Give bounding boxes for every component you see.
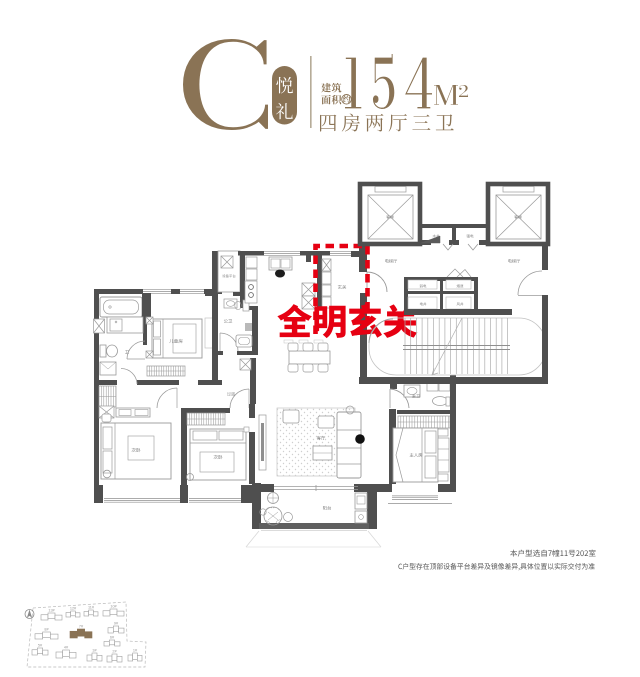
svg-text:8#: 8# [44, 628, 49, 632]
svg-text:9#: 9# [114, 622, 119, 626]
svg-text:4#: 4# [64, 646, 69, 650]
svg-text:11#: 11# [88, 606, 95, 610]
svg-text:7#: 7# [79, 625, 84, 629]
svg-text:12#: 12# [70, 607, 77, 611]
svg-text:10#: 10# [110, 605, 117, 609]
svg-text:5#: 5# [38, 644, 43, 648]
svg-text:13#: 13# [48, 609, 55, 613]
svg-text:2#: 2# [112, 650, 117, 654]
svg-text:6#: 6# [110, 636, 115, 640]
svg-text:3#: 3# [92, 649, 97, 653]
svg-text:1#: 1# [133, 649, 138, 653]
